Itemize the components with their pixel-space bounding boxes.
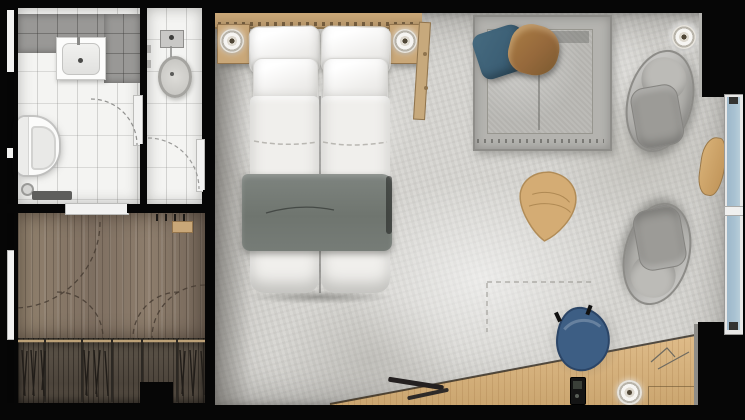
- toilet-tank: [17, 117, 29, 175]
- valet-knob-upper: [423, 52, 427, 56]
- wall-block-top-right: [702, 0, 745, 97]
- sink-drain: [78, 58, 83, 63]
- floor-plan: [0, 0, 745, 420]
- wall-block-bottom-right: [698, 322, 745, 420]
- sofa-frame-stitching: [477, 139, 604, 143]
- bathroom-wall-tiles-right: [104, 14, 140, 83]
- shower-basin: [158, 56, 192, 98]
- window-latch-top: [729, 97, 738, 104]
- blanket-fold-edge: [386, 176, 392, 234]
- toilet-bowl: [31, 126, 56, 170]
- wall-hall-right: [205, 213, 215, 420]
- window-mullion: [724, 206, 745, 216]
- wall-bath-shower-lower: [140, 144, 147, 213]
- desk-chair-seat: [553, 304, 613, 373]
- gray-blanket: [242, 174, 392, 251]
- wardrobe-notch: [140, 382, 173, 403]
- wall-bath-hall-right: [127, 204, 207, 213]
- bedside-lamp-right: [393, 29, 417, 53]
- bedside-lamp-left: [220, 29, 244, 53]
- wall-bath-hall: [0, 204, 65, 213]
- hook-shelf: [172, 221, 193, 233]
- shower-door-leaf: [196, 139, 205, 192]
- window-latch-bottom: [729, 322, 738, 330]
- wardrobe-interior: [18, 338, 205, 403]
- bathroom-door-leaf: [133, 95, 143, 146]
- phone-button: [575, 394, 579, 398]
- wall-segment-white-mid: [7, 148, 13, 158]
- coffee-table-top: [516, 169, 579, 243]
- wall-bottom-left: [0, 403, 215, 420]
- wall-shower-bedroom: [202, 0, 215, 139]
- wall-bottom-main: [215, 405, 745, 420]
- wall-segment-white-top: [7, 10, 14, 72]
- phone-screen: [573, 381, 582, 389]
- faucet: [77, 37, 80, 45]
- threshold-door-leaf: [65, 203, 129, 215]
- valet-knob-lower: [424, 86, 428, 90]
- desk-lamp: [617, 380, 642, 405]
- floor-lamp: [672, 25, 696, 49]
- bath-mat: [32, 191, 72, 200]
- coffee-table: [511, 167, 582, 247]
- shower-basin-drain: [170, 72, 174, 76]
- shower-head-nozzle: [169, 35, 174, 40]
- wall-bath-shower: [140, 0, 147, 95]
- wall-top-main: [205, 0, 745, 13]
- wall-top-left: [0, 0, 205, 8]
